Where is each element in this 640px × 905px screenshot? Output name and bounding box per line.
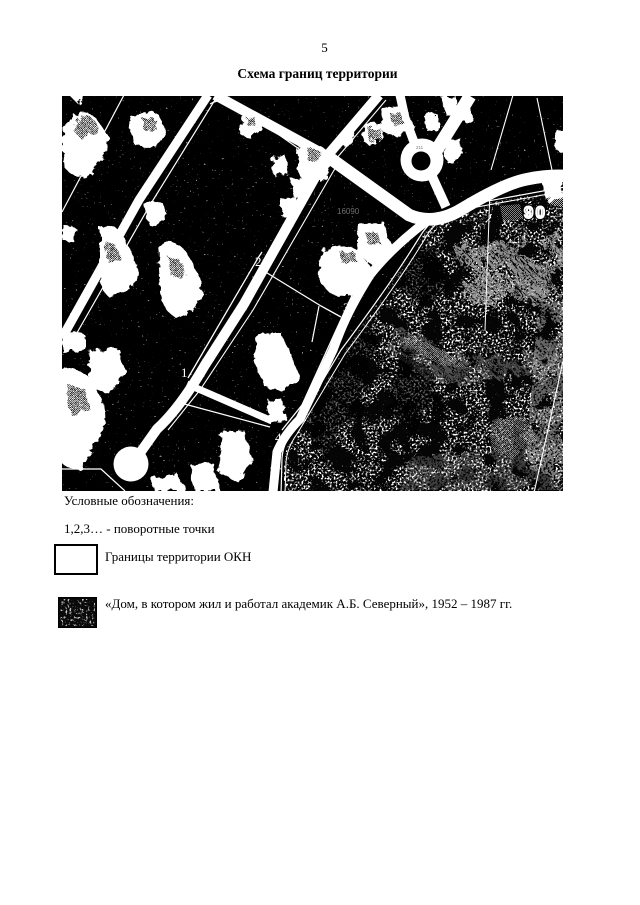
svg-text:90: 90 (524, 204, 547, 222)
svg-text:4: 4 (275, 430, 282, 445)
svg-text:3: 3 (343, 300, 350, 315)
svg-text:16090: 16090 (337, 207, 360, 216)
svg-text:211: 211 (416, 145, 424, 150)
svg-text:1: 1 (181, 365, 188, 380)
svg-text:2: 2 (255, 254, 262, 269)
